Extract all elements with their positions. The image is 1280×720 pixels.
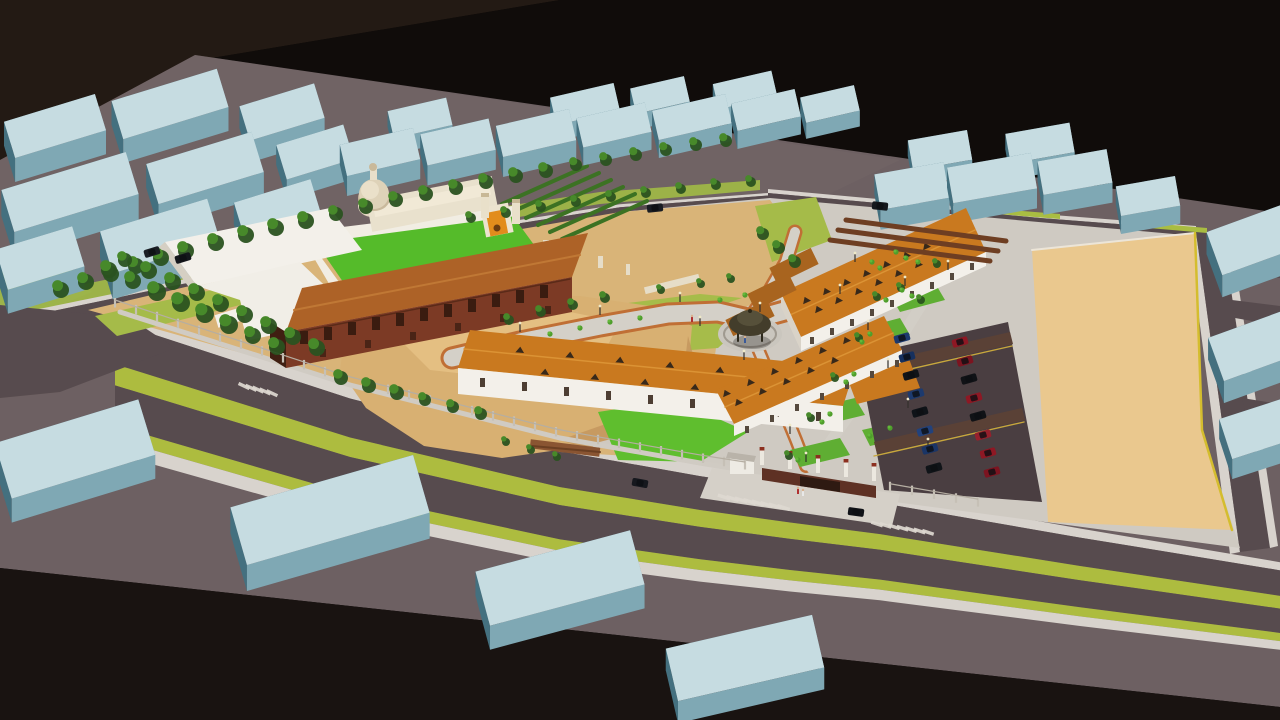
architectural-rendering — [0, 0, 1280, 720]
scene-svg — [0, 0, 1280, 720]
